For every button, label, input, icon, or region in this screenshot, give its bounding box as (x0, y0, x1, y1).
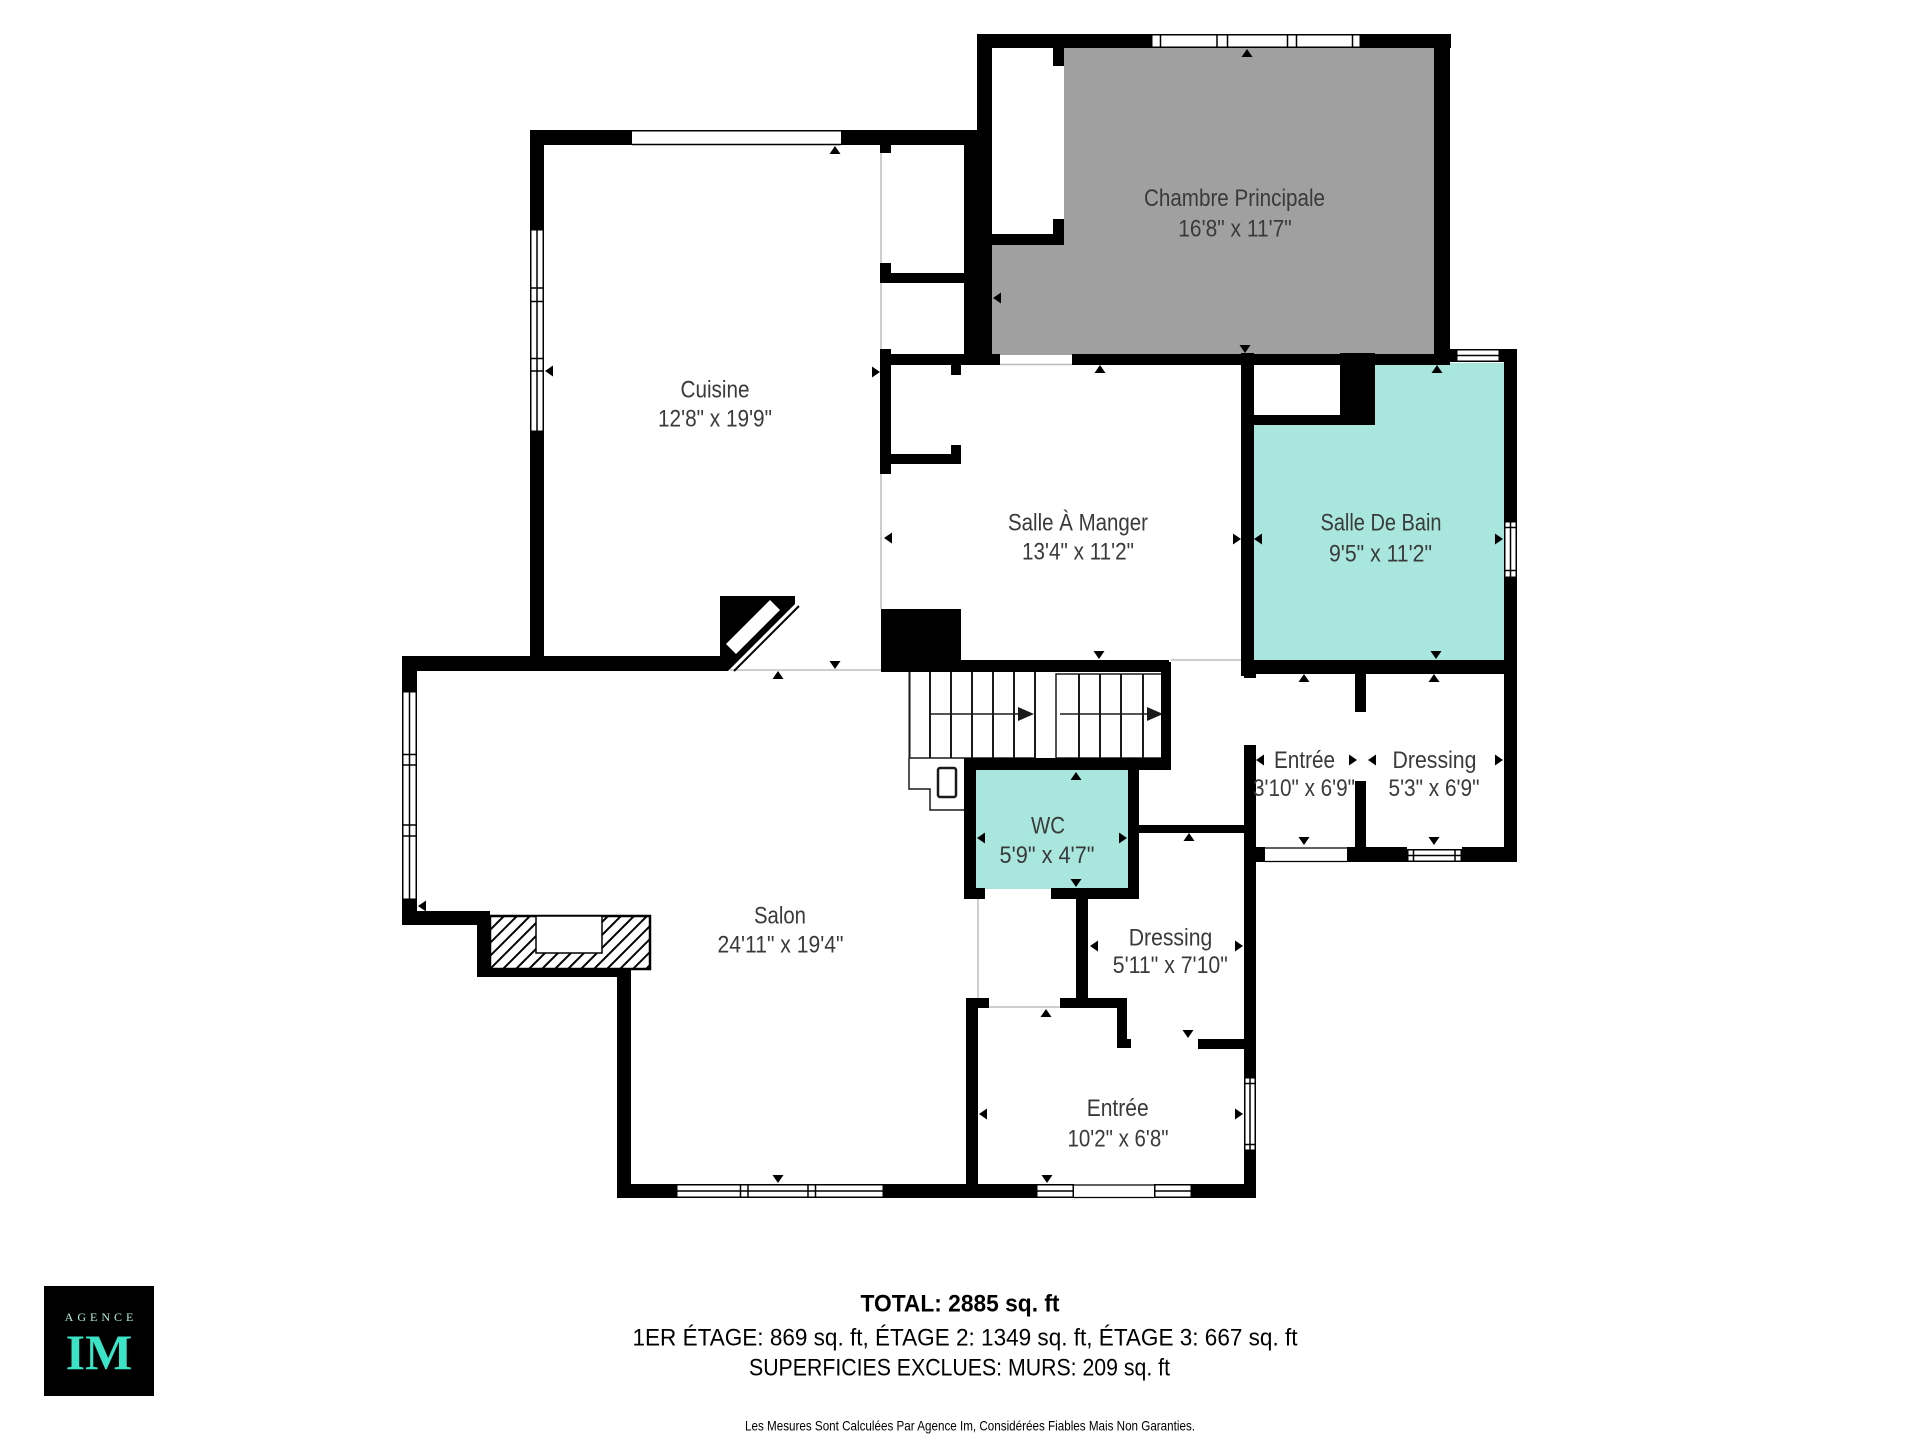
svg-text:WC: WC (1031, 813, 1065, 840)
svg-text:5'9" x 4'7": 5'9" x 4'7" (1000, 842, 1095, 869)
svg-text:Les Mesures Sont Calculées Par: Les Mesures Sont Calculées Par Agence Im… (745, 1418, 1195, 1434)
svg-text:16'8" x 11'7": 16'8" x 11'7" (1178, 216, 1292, 243)
svg-text:Cuisine: Cuisine (681, 377, 750, 404)
svg-text:10'2" x 6'8": 10'2" x 6'8" (1068, 1126, 1169, 1153)
svg-text:Chambre Principale: Chambre Principale (1144, 185, 1325, 212)
svg-text:Salon: Salon (754, 903, 806, 930)
svg-text:9'5" x 11'2": 9'5" x 11'2" (1329, 541, 1432, 568)
svg-text:5'3" x 6'9": 5'3" x 6'9" (1389, 775, 1480, 802)
svg-text:12'8" x 19'9": 12'8" x 19'9" (658, 406, 772, 433)
svg-text:1ER ÉTAGE: 869 sq. ft, ÉTAGE 2: 1ER ÉTAGE: 869 sq. ft, ÉTAGE 2: 1349 sq.… (633, 1325, 1298, 1352)
svg-text:Entrée: Entrée (1274, 747, 1335, 774)
svg-text:Salle De Bain: Salle De Bain (1321, 510, 1442, 537)
svg-text:24'11" x 19'4": 24'11" x 19'4" (718, 932, 844, 959)
svg-text:TOTAL: 2885 sq. ft: TOTAL: 2885 sq. ft (861, 1291, 1060, 1318)
svg-text:SUPERFICIES EXCLUES: MURS: 209: SUPERFICIES EXCLUES: MURS: 209 sq. ft (749, 1355, 1170, 1382)
svg-text:5'11" x 7'10": 5'11" x 7'10" (1113, 952, 1228, 979)
svg-text:Dressing: Dressing (1129, 924, 1213, 951)
svg-text:Entrée: Entrée (1087, 1095, 1149, 1122)
svg-text:13'4" x 11'2": 13'4" x 11'2" (1022, 539, 1134, 566)
svg-text:Dressing: Dressing (1393, 747, 1477, 774)
svg-text:3'10" x 6'9": 3'10" x 6'9" (1253, 775, 1355, 802)
svg-text:Salle À Manger: Salle À Manger (1008, 510, 1148, 537)
